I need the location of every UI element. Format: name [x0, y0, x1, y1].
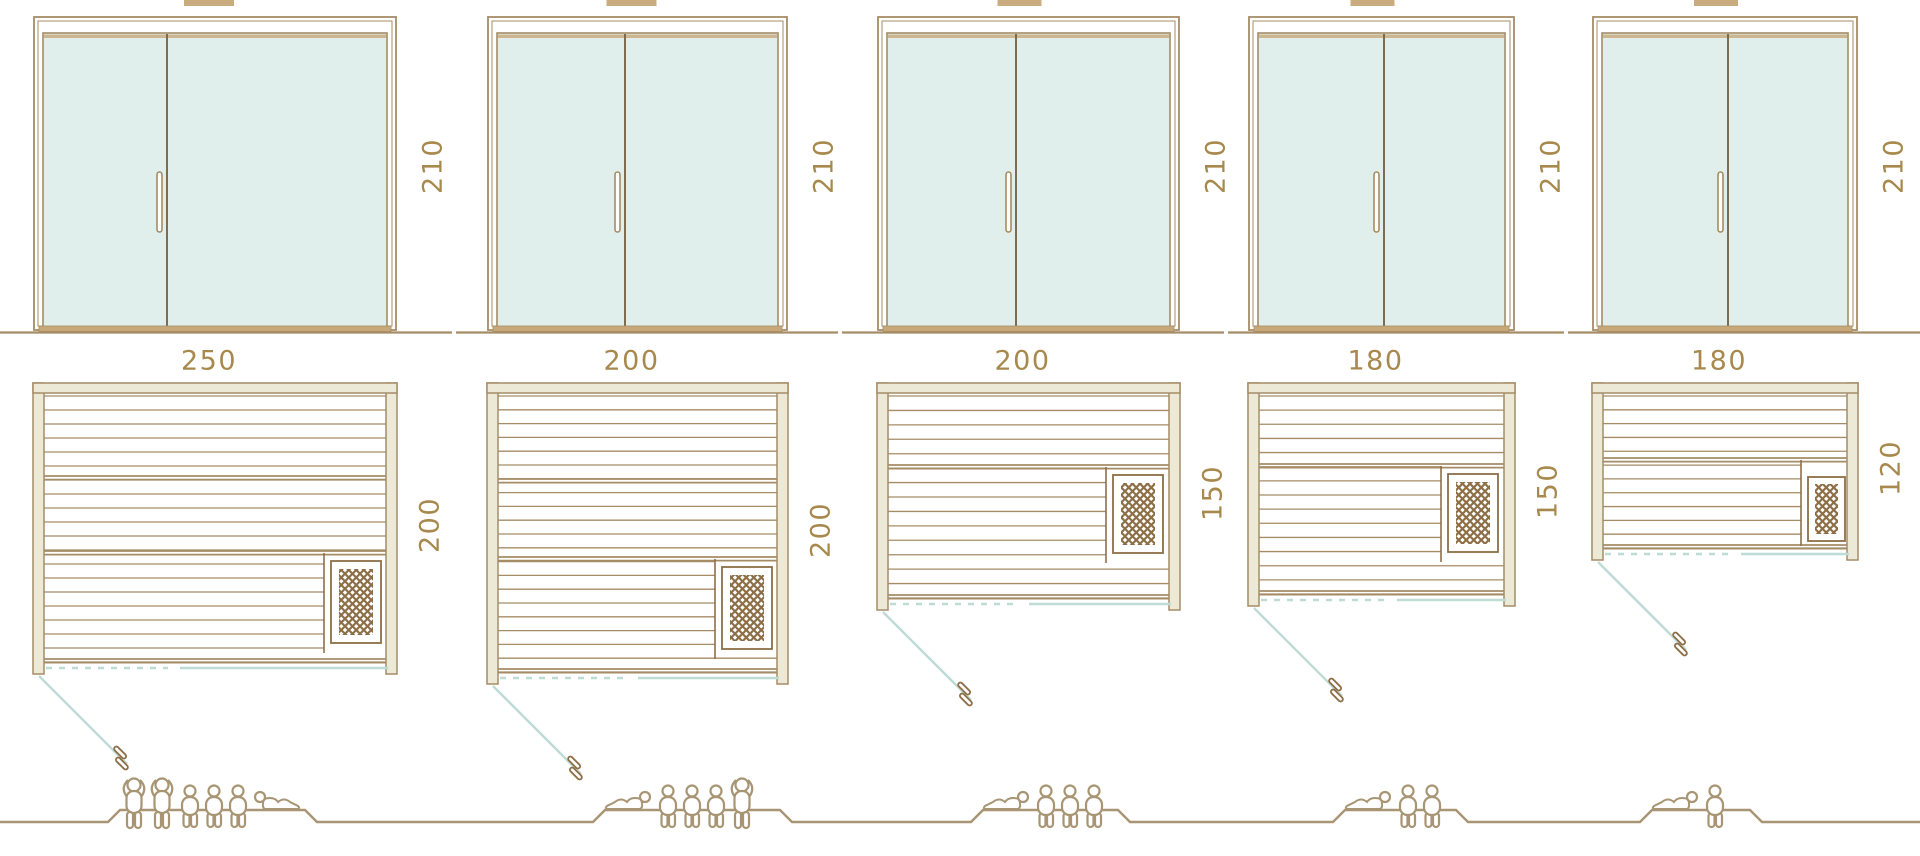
door-height-label: 210: [418, 138, 449, 194]
person-sitting-icon: [1400, 786, 1416, 828]
person-sitting-icon: [1424, 786, 1440, 828]
wall-top: [1248, 383, 1515, 393]
floor-plan: [487, 383, 788, 780]
person-sitting-icon: [1062, 786, 1078, 828]
floor-plan: [877, 383, 1180, 706]
glass-top-rail: [888, 35, 1169, 39]
wall-left: [1592, 383, 1603, 560]
glass-panel: [43, 33, 387, 327]
glass-panel: [1602, 33, 1848, 327]
cropped-top-element: [607, 0, 657, 6]
glass-top-rail: [1259, 35, 1504, 39]
glass-panel: [497, 33, 778, 327]
glass-top-rail: [44, 35, 386, 39]
glass-panel: [887, 33, 1170, 327]
person-sitting-icon: [1038, 786, 1054, 828]
door-handle-icon: [157, 172, 162, 232]
heater-lattice-icon: [1121, 483, 1155, 545]
door-elevation: [878, 17, 1179, 332]
door-elevation: [488, 17, 787, 332]
capacity-baseline: [0, 810, 1920, 822]
heater: [1801, 460, 1845, 546]
heater: [715, 559, 772, 659]
plan-width-label: 200: [994, 346, 1050, 377]
door-swing-line: [1254, 608, 1342, 696]
person-standing-icon: [124, 779, 145, 829]
door-swing-line: [493, 686, 581, 774]
plan-width-label: 250: [181, 346, 237, 377]
door-swing-line: [883, 612, 971, 700]
door-threshold: [39, 326, 391, 332]
door-swing-line: [39, 676, 127, 764]
heater: [1106, 467, 1163, 563]
capacity-figures-group: [606, 779, 752, 829]
heater-lattice-icon: [730, 575, 764, 641]
floor-plan: [1592, 383, 1858, 656]
heater: [1441, 466, 1498, 562]
person-sitting-icon: [230, 786, 246, 828]
cropped-top-element: [1351, 0, 1395, 6]
door-elevation: [1593, 17, 1857, 332]
person-lying-icon: [606, 792, 650, 809]
door-handle-icon: [1718, 172, 1723, 232]
plan-depth-label: 200: [806, 501, 837, 557]
sauna-size-comparison-diagram: 210 250 200 210 200 200 210 200 150 210 …: [0, 0, 1920, 856]
door-threshold: [493, 326, 782, 332]
person-lying-icon: [255, 792, 299, 809]
cropped-top-element: [998, 0, 1042, 6]
plan-width-label: 180: [1691, 346, 1747, 377]
person-lying-icon: [1346, 792, 1390, 809]
person-sitting-icon: [206, 786, 222, 828]
door-height-label: 210: [809, 138, 840, 194]
capacity-figures-group: [984, 786, 1102, 828]
plan-depth-label: 150: [1198, 464, 1229, 520]
door-height-label: 210: [1201, 138, 1232, 194]
wall-top: [487, 383, 788, 393]
person-sitting-icon: [708, 786, 724, 828]
capacity-figures-group: [124, 779, 299, 829]
door-handle-icon: [1374, 172, 1379, 232]
wall-top: [33, 383, 397, 393]
glass-panel: [1258, 33, 1505, 327]
wall-right: [1169, 383, 1180, 610]
door-threshold: [883, 326, 1174, 332]
door-swing-line: [1598, 562, 1686, 650]
wall-left: [877, 383, 888, 610]
person-standing-icon: [732, 779, 753, 829]
wall-left: [487, 383, 498, 684]
wall-right: [777, 383, 788, 684]
plan-width-label: 180: [1347, 346, 1403, 377]
cropped-top-element: [1694, 0, 1738, 6]
sauna-column-5: [1568, 0, 1920, 656]
wall-top: [1592, 383, 1858, 393]
door-height-label: 210: [1879, 138, 1910, 194]
plan-width-label: 200: [603, 346, 659, 377]
plan-depth-label: 120: [1876, 439, 1907, 495]
person-sitting-icon: [182, 786, 198, 828]
heater-lattice-icon: [1815, 484, 1838, 534]
floor-plan: [33, 383, 397, 770]
cropped-top-element: [184, 0, 234, 6]
person-lying-icon: [984, 792, 1028, 809]
door-threshold: [1598, 326, 1852, 332]
plan-depth-label: 200: [415, 496, 446, 552]
wall-left: [1248, 383, 1259, 606]
sauna-column-1: [0, 0, 452, 770]
person-sitting-icon: [660, 786, 676, 828]
plan-depth-label: 150: [1533, 462, 1564, 518]
glass-top-rail: [1603, 35, 1847, 39]
door-elevation: [1249, 17, 1514, 332]
person-sitting-icon: [1086, 786, 1102, 828]
door-elevation: [34, 17, 396, 332]
glass-top-rail: [498, 35, 777, 39]
wall-right: [386, 383, 397, 674]
person-lying-icon: [1653, 792, 1697, 809]
heater: [324, 553, 381, 653]
capacity-figures-group: [1346, 786, 1440, 828]
wall-left: [33, 383, 44, 674]
person-sitting-icon: [684, 786, 700, 828]
wall-right: [1504, 383, 1515, 606]
door-threshold: [1254, 326, 1509, 332]
person-sitting-icon: [1707, 786, 1723, 828]
sauna-column-2: [456, 0, 838, 780]
door-handle-icon: [1006, 172, 1011, 232]
floor-plan: [1248, 383, 1515, 702]
person-standing-icon: [152, 779, 173, 829]
capacity-figures-group: [1653, 786, 1723, 828]
diagram-canvas: [0, 0, 1920, 856]
wall-top: [877, 383, 1180, 393]
door-handle-icon: [615, 172, 620, 232]
wall-right: [1847, 383, 1858, 560]
heater-lattice-icon: [1456, 482, 1490, 544]
door-height-label: 210: [1536, 138, 1567, 194]
heater-lattice-icon: [339, 569, 373, 635]
